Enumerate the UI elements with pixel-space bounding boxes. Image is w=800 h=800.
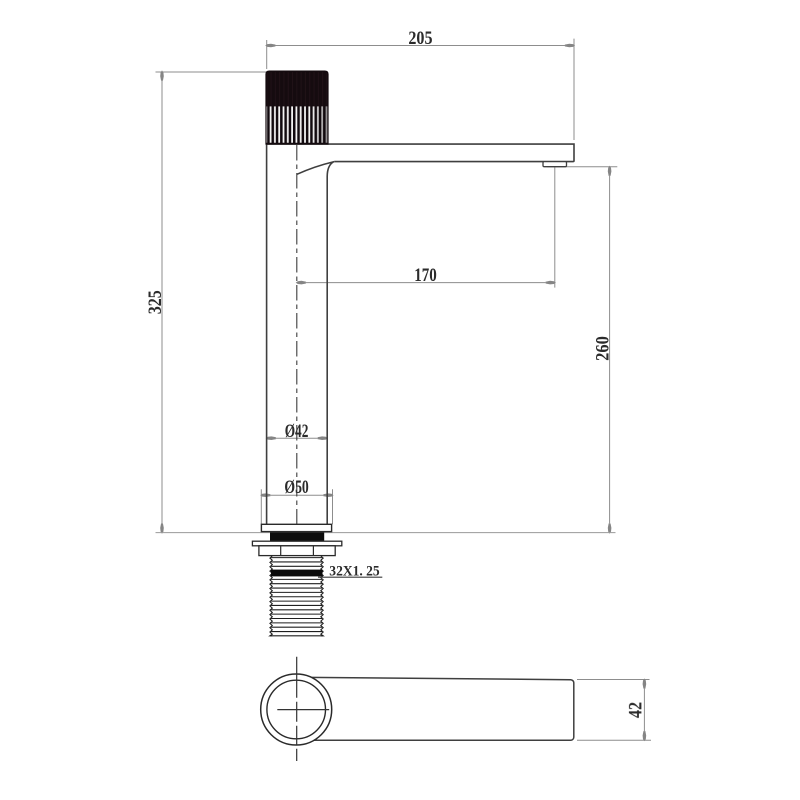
svg-text:Ø50: Ø50 — [284, 478, 308, 498]
svg-text:325: 325 — [146, 290, 166, 314]
svg-text:32X1. 25: 32X1. 25 — [329, 564, 379, 580]
svg-text:260: 260 — [593, 336, 613, 361]
svg-text:205: 205 — [408, 29, 432, 49]
svg-text:Ø42: Ø42 — [285, 422, 309, 442]
svg-text:42: 42 — [626, 702, 646, 718]
svg-text:170: 170 — [414, 266, 437, 286]
